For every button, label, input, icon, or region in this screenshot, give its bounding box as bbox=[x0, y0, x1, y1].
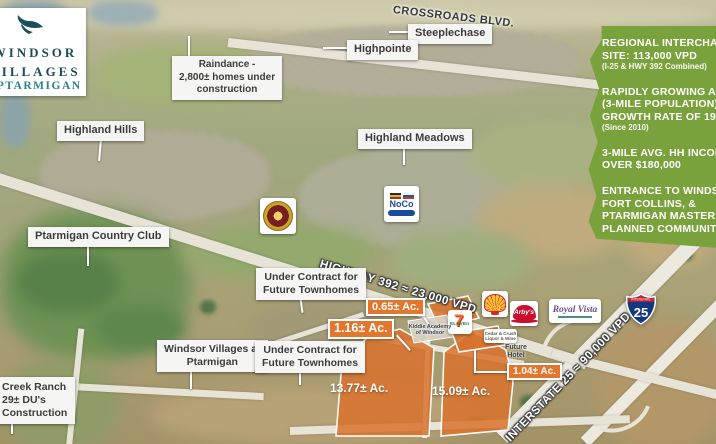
stat-subline: (I-25 & HWY 392 Combined) bbox=[602, 62, 716, 72]
label-text: Construction bbox=[2, 407, 67, 420]
flag-icon bbox=[390, 193, 401, 199]
stat-group-interchange: REGIONAL INTERCHANGE SITE: 113,000 VPD (… bbox=[602, 37, 716, 73]
stat-group-entrance: ENTRANCE TO WINDSOR, FORT COLLINS, & PTA… bbox=[602, 185, 716, 235]
stat-line: PTARMIGAN MASTER bbox=[602, 210, 716, 223]
royal-vista-logo: Royal Vista bbox=[549, 299, 601, 323]
shell-base bbox=[491, 311, 499, 315]
label-text: Under Contract for bbox=[262, 344, 358, 357]
shell-pecten-icon bbox=[484, 294, 506, 312]
label-text: of Windsor bbox=[406, 330, 454, 336]
stat-group-income: 3-MILE AVG. HH INCOME OVER $180,000 bbox=[602, 147, 716, 172]
logo-line-1: WINDSOR bbox=[0, 45, 86, 61]
stat-line: (3-MILE POPULATION) bbox=[602, 98, 716, 111]
future-hotel-label: Future Hotel bbox=[498, 344, 534, 360]
label-text: Under Contract for bbox=[263, 271, 359, 284]
shield-interstate-text: INTERSTATE bbox=[631, 298, 650, 302]
label-text: Windsor Villages at bbox=[164, 343, 261, 356]
stat-subline: (Since 2010) bbox=[602, 123, 716, 133]
acreage-chip-1-16: 1.16± Ac. bbox=[328, 319, 394, 339]
label-text: Creek Ranch bbox=[2, 381, 67, 394]
noco-logo-bar bbox=[388, 210, 415, 216]
label-highland-meadows: Highland Meadows bbox=[358, 129, 472, 149]
acreage-chip-0-65: 0.65± Ac. bbox=[366, 298, 425, 316]
label-text: Highland Meadows bbox=[365, 132, 465, 146]
royal-vista-text: Royal Vista bbox=[553, 305, 598, 315]
label-text: 29± DU's bbox=[2, 394, 67, 407]
label-under-contract-north: Under Contract for Future Townhomes bbox=[256, 268, 366, 300]
stat-line: OVER $180,000 bbox=[602, 159, 716, 172]
circular-seal-icon bbox=[263, 201, 293, 231]
circular-emblem-logo bbox=[260, 198, 296, 234]
leader-line bbox=[474, 371, 508, 373]
leader-line bbox=[403, 147, 405, 165]
logo-line-2: VILLAGES bbox=[0, 64, 86, 80]
liquor-store-label: Cedar & Crush Liquor & Wine bbox=[484, 329, 517, 343]
label-text: Ptarmigan Country Club bbox=[35, 230, 162, 244]
stat-line: FORT COLLINS, & bbox=[602, 198, 716, 211]
ptarmigan-bird-icon bbox=[15, 13, 45, 37]
label-raindance: Raindance - 2,800± homes under construct… bbox=[172, 56, 282, 100]
parcel-area-15-09: 15.09± Ac. bbox=[432, 384, 490, 398]
label-steeplechase: Steeplechase bbox=[408, 24, 492, 44]
stat-line: PLANNED COMMUNITY bbox=[602, 223, 716, 236]
logo-line-3: AT PTARMIGAN bbox=[0, 80, 86, 92]
arbys-logo: Arby's bbox=[510, 301, 538, 326]
noco-logo-text: NoCo bbox=[390, 200, 414, 209]
label-creek-ranch: Creek Ranch 29± DU's Construction bbox=[0, 377, 75, 424]
kiddie-academy-label: Kiddie Academy of Windsor bbox=[406, 324, 454, 337]
label-text: Highland Hills bbox=[64, 124, 137, 138]
label-text: Highpointe bbox=[354, 43, 411, 57]
label-text: Raindance - bbox=[179, 59, 275, 72]
label-text: 2,800± homes under bbox=[179, 72, 275, 85]
interstate-25-shield: INTERSTATE 25 bbox=[626, 293, 656, 325]
label-under-contract-south: Under Contract for Future Townhomes bbox=[255, 341, 365, 373]
leader-line bbox=[323, 47, 349, 49]
stat-line: SITE: 113,000 VPD bbox=[602, 50, 716, 63]
label-windsor-villages: Windsor Villages at Ptarmigan bbox=[157, 340, 268, 372]
label-text: Future bbox=[498, 344, 534, 352]
stat-line: REGIONAL INTERCHANGE bbox=[602, 37, 716, 50]
label-text: Future Townhomes bbox=[262, 357, 358, 370]
label-text: Ptarmigan bbox=[164, 356, 261, 369]
stat-line: ENTRANCE TO WINDSOR, bbox=[602, 185, 716, 198]
stat-line: GROWTH RATE OF 19% bbox=[602, 111, 716, 124]
leader-line bbox=[474, 350, 476, 373]
stat-line: RAPIDLY GROWING AREA bbox=[602, 86, 716, 99]
stat-group-growth: RAPIDLY GROWING AREA (3-MILE POPULATION)… bbox=[602, 86, 716, 134]
parcel-area-13-77: 13.77± Ac. bbox=[330, 381, 388, 395]
label-highland-hills: Highland Hills bbox=[57, 121, 144, 141]
arbys-text: Arby's bbox=[514, 309, 534, 316]
label-text: construction bbox=[179, 84, 275, 97]
acreage-chip-1-04: 1.04± Ac. bbox=[507, 363, 562, 380]
label-highpointe: Highpointe bbox=[347, 40, 418, 60]
arbys-hat-icon: Arby's bbox=[513, 305, 536, 320]
info-panel-content: REGIONAL INTERCHANGE SITE: 113,000 VPD (… bbox=[602, 37, 716, 235]
royal-vista-subline bbox=[558, 316, 592, 318]
noco-logo: NoCo bbox=[384, 186, 419, 222]
label-ptarmigan-country-club: Ptarmigan Country Club bbox=[28, 227, 169, 247]
label-text: Hotel bbox=[498, 352, 534, 360]
leader-line bbox=[188, 36, 190, 57]
flag-icon bbox=[403, 193, 414, 199]
info-panel: REGIONAL INTERCHANGE SITE: 113,000 VPD (… bbox=[586, 26, 716, 250]
flag-icons bbox=[390, 193, 414, 199]
shell-logo bbox=[482, 291, 508, 317]
windsor-villages-logo: WINDSOR VILLAGES AT PTARMIGAN bbox=[0, 8, 86, 96]
label-text: Steeplechase bbox=[415, 27, 485, 41]
aerial-site-map: CROSSROADS BLVD. HIGHWAY 392 ≈ 23,000 VP… bbox=[0, 0, 716, 444]
shield-number: 25 bbox=[634, 305, 648, 320]
label-text: Future Townhomes bbox=[263, 284, 359, 297]
label-text: Liquor & Wine bbox=[485, 336, 515, 341]
stat-line: 3-MILE AVG. HH INCOME bbox=[602, 147, 716, 160]
leader-line bbox=[87, 246, 89, 266]
